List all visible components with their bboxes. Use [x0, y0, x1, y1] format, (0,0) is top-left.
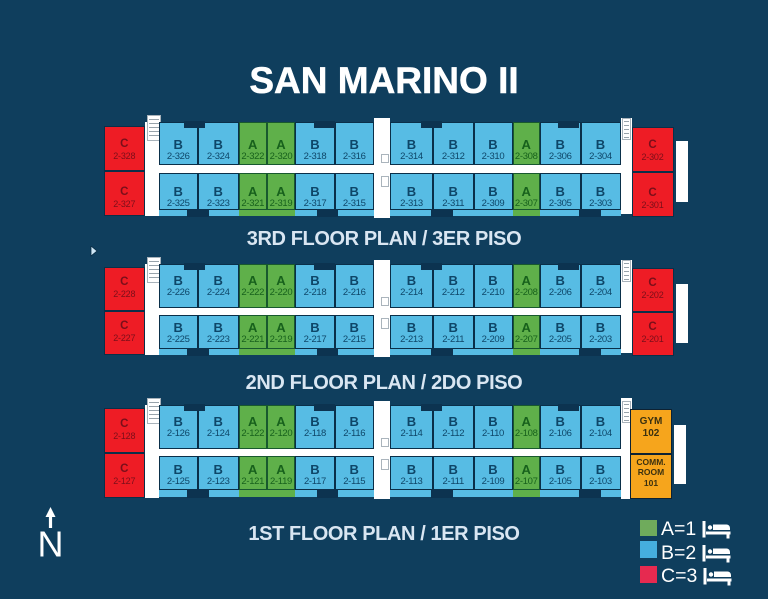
svg-text:N: N — [38, 524, 64, 561]
